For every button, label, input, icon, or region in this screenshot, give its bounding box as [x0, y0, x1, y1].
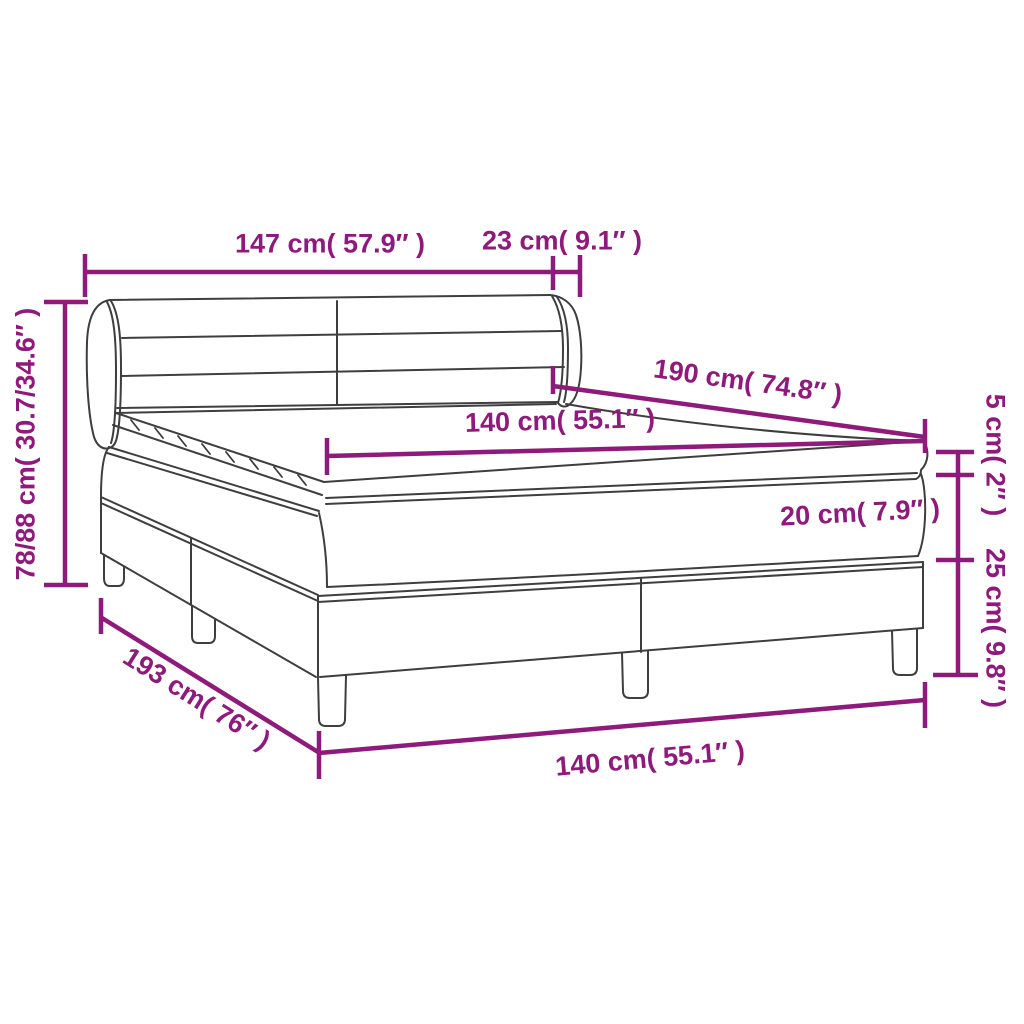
leg-front-right [892, 629, 917, 675]
dimension-total-height: 78/88 cm( 30.7/34.6″ ) [10, 302, 88, 585]
headboard-top-edge [110, 295, 550, 300]
dimension-line [85, 254, 580, 297]
dimension-headboard-width: 147 cm( 57.9″ ) 23 cm( 9.1″ ) [85, 225, 642, 297]
dimension-label-mattress-thickness: 20 cm( 7.9″ ) [779, 493, 940, 531]
topper-bottom-left-edge [113, 425, 322, 495]
mattress-left-seam-a [109, 447, 319, 511]
base-left-top-a [101, 497, 318, 595]
dimension-label-mattress-width: 140 cm( 55.1″ ) [465, 403, 656, 438]
dimension-line [44, 302, 88, 585]
leg-front-middle [622, 651, 648, 698]
dimension-label-base-length: 193 cm( 76″ ) [118, 641, 276, 755]
dimension-base-width: 140 cm( 55.1″ ) [319, 682, 925, 782]
dimension-label-total-height: 78/88 cm( 30.7/34.6″ ) [10, 308, 40, 581]
dimension-label-base-width: 140 cm( 55.1″ ) [554, 735, 746, 781]
headboard-stripe-1 [122, 331, 561, 338]
topper-top-left-edge [116, 413, 324, 482]
dimension-label-base-height: 25 cm( 9.8″ ) [981, 548, 1011, 708]
base-front-top-a [318, 562, 923, 596]
diagram-page: 147 cm( 57.9″ ) 23 cm( 9.1″ ) 78/88 cm( … [0, 0, 1024, 1024]
slat-hatch-marks [131, 420, 306, 485]
left-silhouette-connector [101, 447, 109, 497]
dimension-mattress-width: 140 cm( 55.1″ ) [327, 403, 924, 475]
dimension-label-headboard-width: 147 cm( 57.9″ ) [235, 228, 425, 258]
headboard-stripe-2 [121, 367, 564, 376]
leg-front-left [318, 676, 346, 726]
base-left-top-b [101, 503, 318, 601]
product-dimension-diagram: 147 cm( 57.9″ ) 23 cm( 9.1″ ) 78/88 cm( … [0, 0, 1024, 1024]
mattress-front-corner-edge [319, 513, 327, 587]
dimension-label-bed-length: 190 cm( 74.8″ ) [652, 353, 844, 409]
mattress-left-seam-b [107, 453, 317, 516]
dimension-line [319, 682, 925, 753]
dimension-label-wing-depth: 23 cm( 9.1″ ) [482, 225, 642, 255]
dimension-line [327, 438, 924, 475]
dimension-base-length: 193 cm( 76″ ) [101, 598, 319, 779]
headboard-left-wing-piping [107, 302, 116, 443]
dimension-line [933, 452, 978, 675]
dimension-label-topper-thickness: 5 cm( 2″ ) [981, 394, 1011, 516]
